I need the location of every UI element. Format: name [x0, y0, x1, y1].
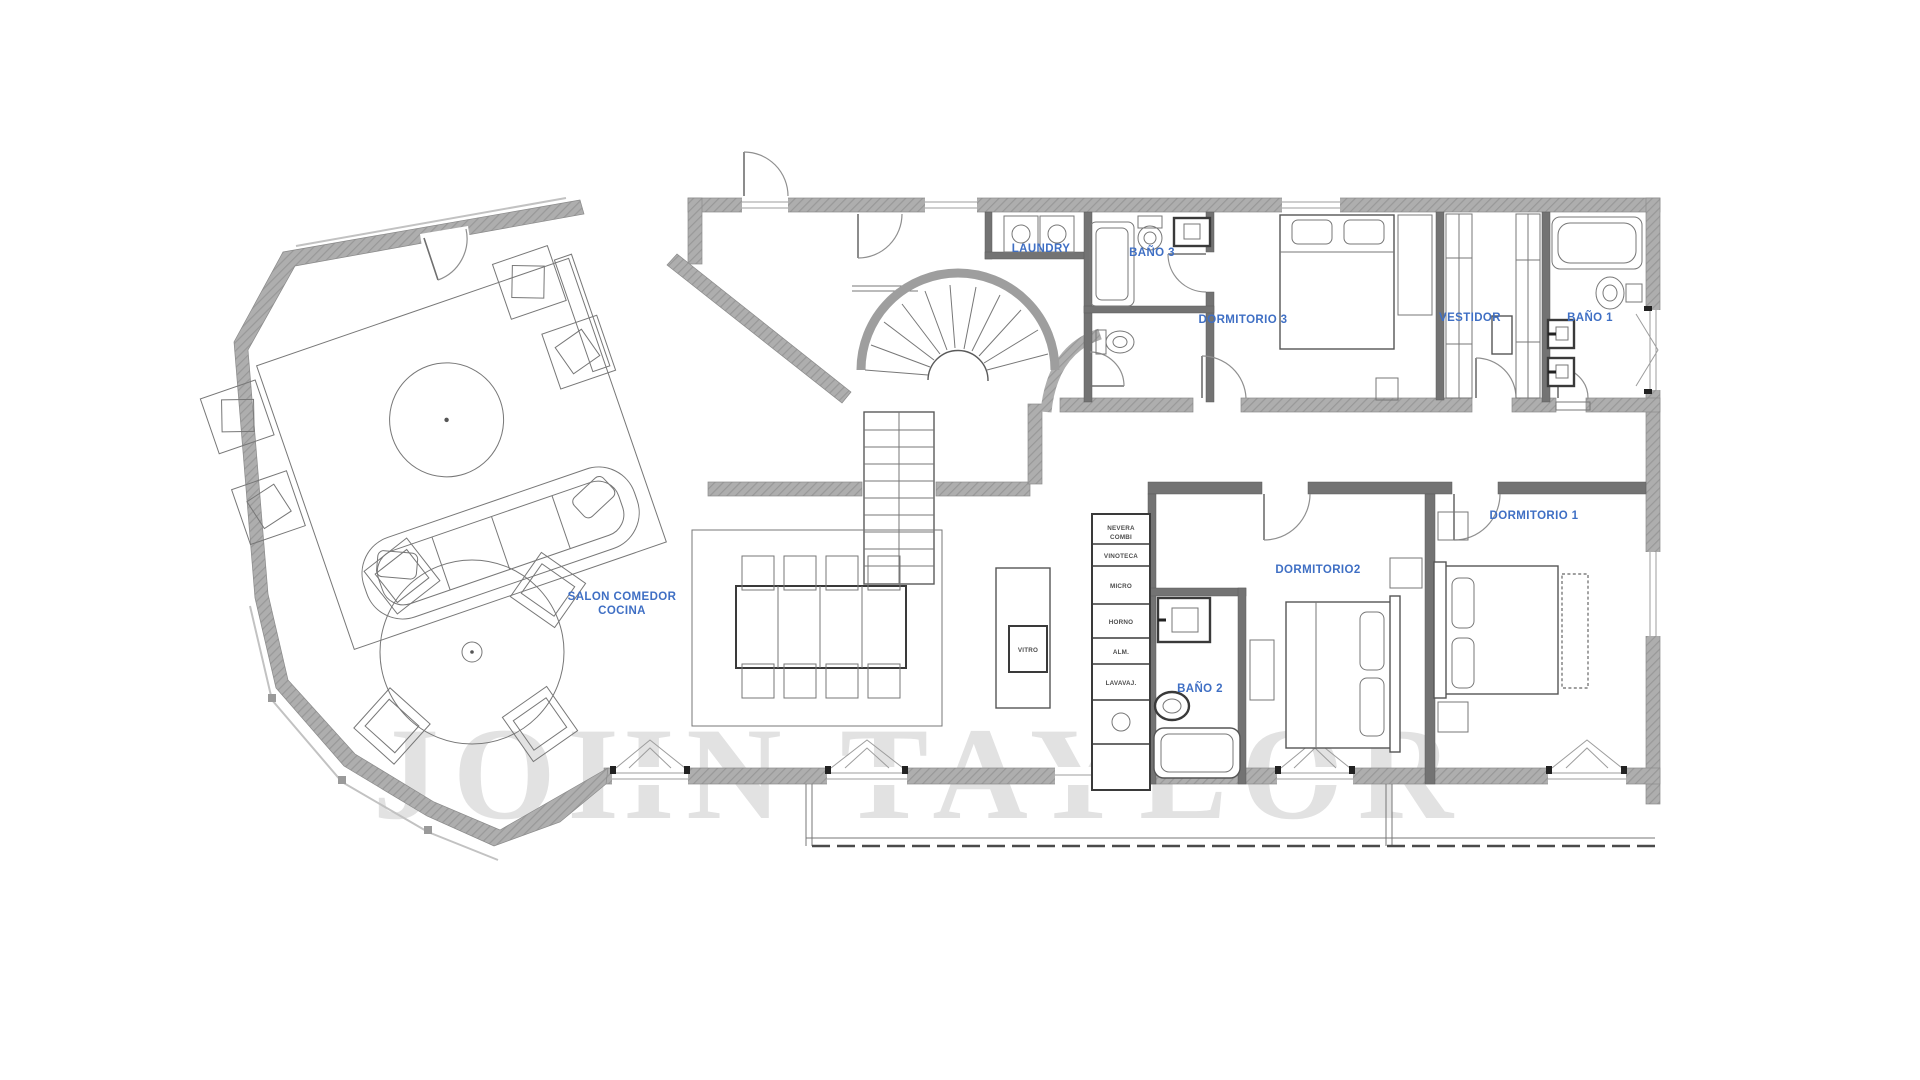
appliance-label: COMBI — [1110, 534, 1132, 541]
label-dormitorio2: DORMITORIO2 — [1275, 564, 1360, 576]
label-dormitorio3: DORMITORIO 3 — [1199, 314, 1288, 326]
bedroom-3-furniture — [1280, 215, 1432, 400]
appliance-label: LAVAVAJ. — [1106, 680, 1137, 687]
label-salon-line1: SALON COMEDOR — [568, 591, 677, 603]
wc — [1096, 330, 1134, 354]
door-landing — [744, 152, 788, 196]
spiral-staircase — [861, 273, 1055, 584]
kitchen-column: NEVERA COMBI VINOTECA MICRO HORNO ALM. L… — [1092, 514, 1150, 790]
appliance-label: ALM. — [1113, 649, 1129, 656]
door-dorm2 — [1264, 494, 1310, 540]
sofa — [352, 457, 650, 630]
label-vestidor: VESTIDOR — [1439, 312, 1501, 324]
label-salon-line2: COCINA — [598, 605, 646, 617]
armchair — [200, 380, 274, 454]
window-bath1 — [1636, 306, 1661, 394]
appliance-label: VINOTECA — [1104, 553, 1138, 560]
appliance-label: HORNO — [1109, 619, 1133, 626]
door-wc — [1090, 352, 1124, 386]
label-bano3: BAÑO 3 — [1129, 246, 1175, 259]
dining-table-set — [692, 530, 942, 726]
appliance-label: MICRO — [1110, 583, 1132, 590]
label-laundry: LAUNDRY — [1012, 243, 1071, 255]
straight-flight — [864, 412, 934, 584]
armchair — [232, 471, 306, 545]
door-entry — [858, 214, 902, 258]
floor-plan-drawing: JOHN TAYLOR — [0, 0, 1920, 1080]
kitchen-island: VITRO — [996, 568, 1050, 708]
island-label: VITRO — [1018, 647, 1038, 654]
window-top-1 — [742, 197, 788, 213]
bathroom-3 — [1090, 216, 1210, 306]
window-dorm1 — [1645, 552, 1661, 636]
label-bano2: BAÑO 2 — [1177, 682, 1223, 695]
label-dormitorio1: DORMITORIO 1 — [1490, 510, 1579, 522]
door-bath3 — [1168, 254, 1206, 292]
door-vestidor — [1476, 358, 1516, 398]
floor-plan-page: JOHN TAYLOR — [0, 0, 1920, 1080]
armchair — [492, 246, 566, 320]
window-top-3 — [1282, 197, 1340, 213]
dressing-room — [1446, 214, 1540, 398]
door-salon-diagonal — [420, 226, 470, 280]
armchair — [542, 315, 616, 389]
appliance-label: NEVERA — [1107, 525, 1135, 532]
window-top-2 — [925, 197, 977, 213]
bedroom-1-furniture — [1434, 512, 1588, 732]
window-bottom-4 — [1546, 740, 1627, 785]
label-bano1: BAÑO 1 — [1567, 311, 1613, 324]
interior-walls — [852, 212, 1646, 784]
